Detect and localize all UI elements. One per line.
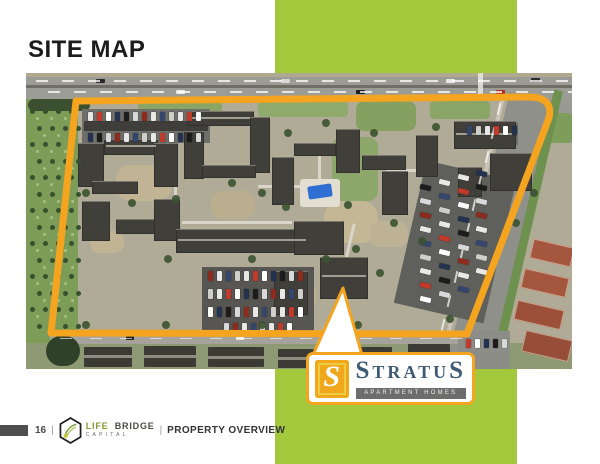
- footer-divider-2: |: [160, 425, 163, 436]
- slide: SITE MAP S STRATUS APARTMENT HOMES 16 |: [0, 0, 600, 464]
- page-title: SITE MAP: [28, 36, 145, 64]
- brand-word-bridge: BRIDGE: [115, 421, 155, 431]
- lifebridge-brand: LIFE BRIDGE CAPITAL: [86, 422, 155, 438]
- stratus-logo-text: STRATUS APARTMENT HOMES: [356, 358, 467, 399]
- wordmark-last-letter: S: [449, 357, 466, 384]
- page-number: 16: [35, 425, 46, 436]
- stratus-monogram-letter: S: [323, 362, 340, 392]
- stratus-logo-callout: S STRATUS APARTMENT HOMES: [306, 352, 475, 405]
- wordmark-first-letter: S: [356, 357, 373, 384]
- site-map-image: [26, 73, 572, 369]
- footer-divider-1: |: [51, 425, 54, 436]
- footer: 16 | LIFE BRIDGE CAPITAL | PROPERTY OVER…: [0, 414, 600, 446]
- callout-pointer: [300, 280, 380, 360]
- brand-word-life: LIFE: [86, 421, 109, 431]
- stratus-monogram-icon: S: [315, 360, 349, 398]
- stratus-subtitle: APARTMENT HOMES: [356, 388, 467, 399]
- lifebridge-hexagon-icon: [59, 417, 82, 444]
- section-label: PROPERTY OVERVIEW: [167, 425, 285, 436]
- callout-tail: [313, 288, 362, 355]
- property-boundary: [26, 73, 572, 369]
- lifebridge-brand-sub: CAPITAL: [86, 433, 155, 438]
- footer-accent-bar: [0, 425, 28, 436]
- wordmark-middle-letters: TRATU: [372, 362, 449, 382]
- lifebridge-brand-name: LIFE BRIDGE: [86, 422, 155, 431]
- stratus-wordmark: STRATUS: [356, 358, 467, 387]
